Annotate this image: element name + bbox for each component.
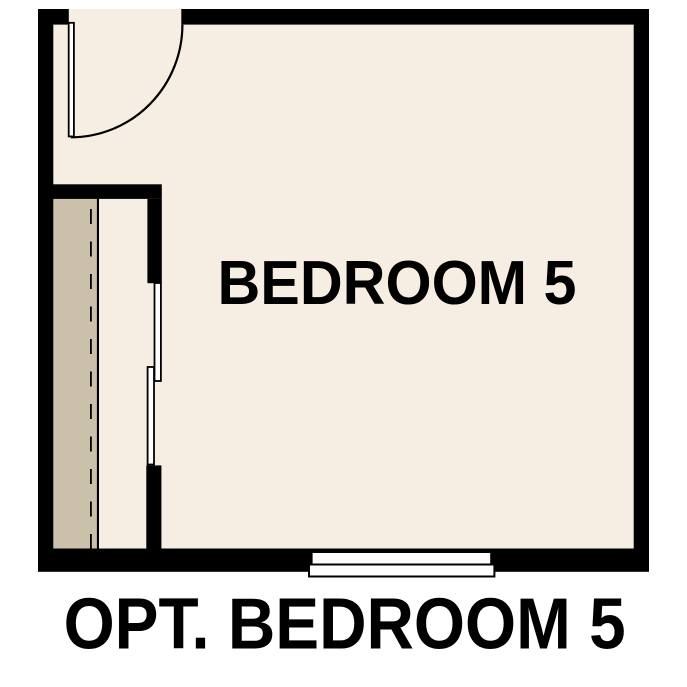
svg-text:OPT. BEDROOM 5: OPT. BEDROOM 5 (64, 585, 626, 665)
svg-text:BEDROOM 5: BEDROOM 5 (218, 249, 577, 318)
